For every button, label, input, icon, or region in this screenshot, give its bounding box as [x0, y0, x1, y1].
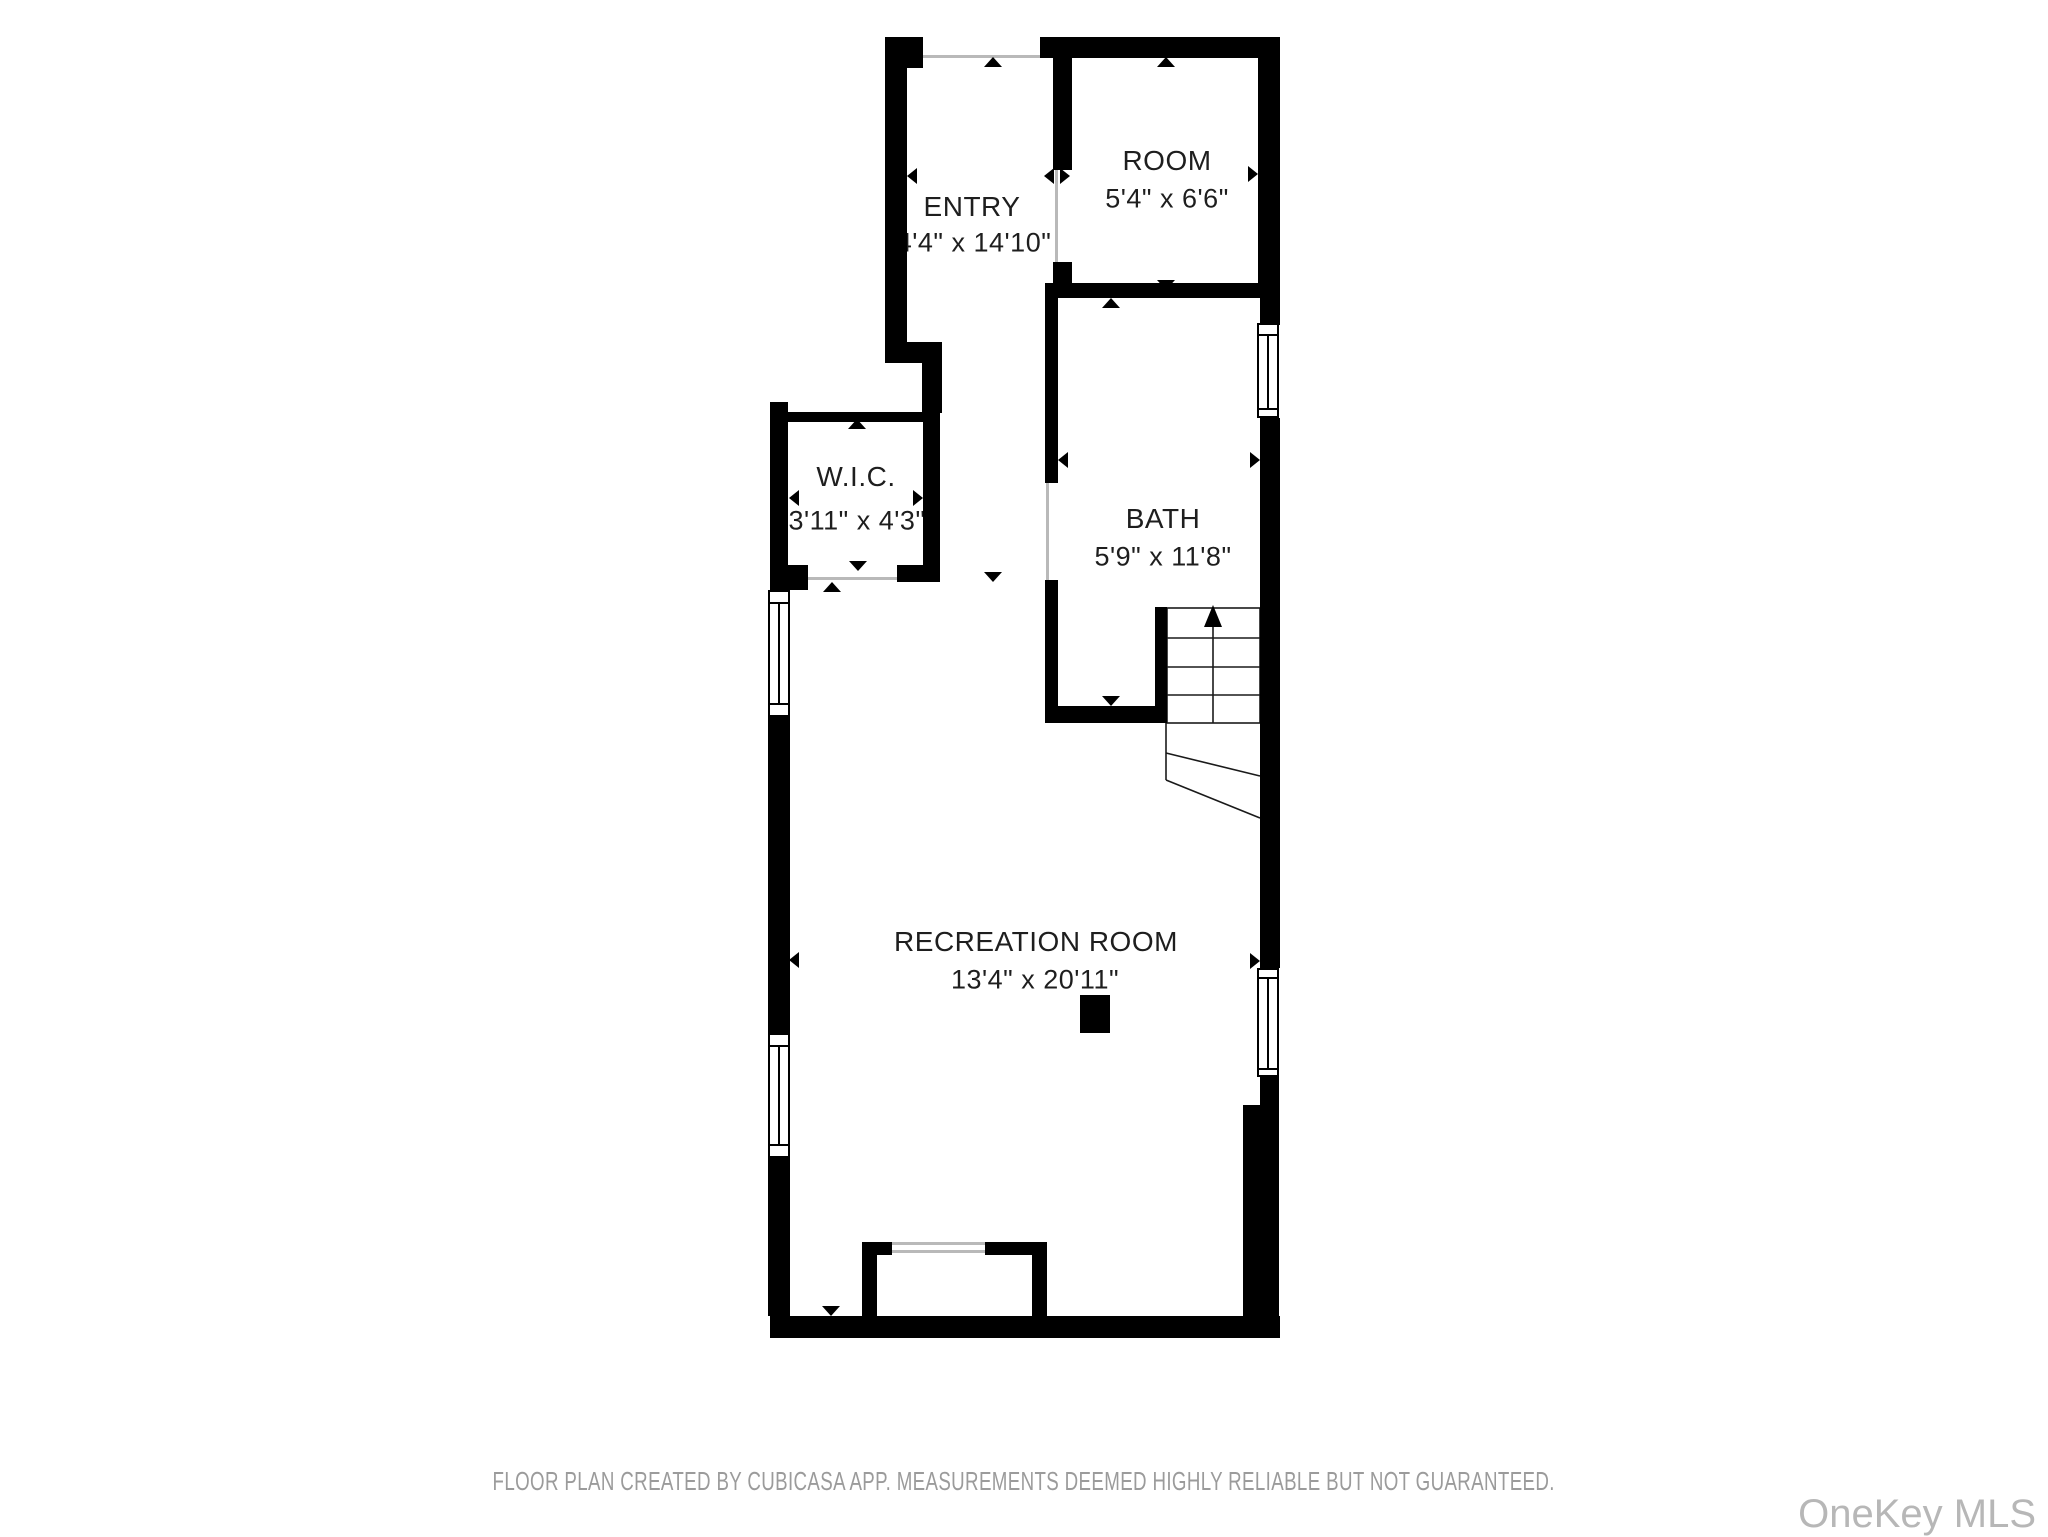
recreation-east-marker-icon [1250, 953, 1260, 969]
room-east-marker-icon [1248, 166, 1258, 182]
wic-label: W.I.C. [816, 461, 895, 493]
entry-dimensions: 4'4" x 14'10" [897, 228, 1052, 259]
window-west-upper [768, 590, 790, 717]
wall-bath-west-upper [1045, 298, 1058, 483]
disclaimer-footer: FLOOR PLAN CREATED BY CUBICASA APP. MEAS… [0, 1466, 2048, 1497]
entry-door-threshold [922, 55, 1040, 58]
recreation-north-marker-icon [823, 582, 841, 592]
floor-plan: ENTRY 4'4" x 14'10" ROOM 5'4" x 6'6" W.I… [0, 0, 2048, 1536]
wall-entry-west [885, 68, 907, 342]
alcove-opening-bottom-line [892, 1250, 985, 1253]
wall-entry-jog-vertical [922, 363, 942, 413]
wall-east-mid [1260, 418, 1280, 968]
entry-room-door-arrow-left-icon [1044, 168, 1054, 184]
wall-alcove-top-left [877, 1242, 892, 1255]
recreation-label: RECREATION ROOM [894, 926, 1178, 958]
entry-west-marker-icon [907, 168, 917, 184]
recreation-west-marker-icon [789, 952, 799, 968]
stair-break-line [1166, 780, 1260, 818]
window-frame-line [1267, 977, 1269, 1070]
wall-wic-bottom-east [897, 565, 940, 582]
wall-wic-west [770, 402, 788, 590]
wall-bath-bottom [1045, 706, 1167, 723]
window-west-lower [768, 1033, 790, 1158]
stair-break-line [1166, 753, 1260, 776]
wall-entry-jog-horizontal [885, 342, 942, 363]
wall-rec-west-lower [768, 1158, 790, 1316]
window-frame-line [778, 602, 780, 705]
room-north-marker-icon [1157, 57, 1175, 67]
wall-stair-west-stub [1155, 607, 1167, 723]
entry-north-marker-icon [984, 57, 1002, 67]
bath-east-marker-icon [1250, 452, 1260, 468]
wic-north-marker-icon [848, 419, 866, 429]
entry-room-door-arrow-right-icon [1060, 168, 1070, 184]
recreation-south-marker-icon [822, 1306, 840, 1316]
room-door-threshold [1055, 170, 1058, 262]
wall-entry-corner-nw [885, 37, 923, 68]
wic-door-threshold [808, 577, 897, 580]
bath-label: BATH [1126, 503, 1201, 535]
bath-dimensions: 5'9" x 11'8" [1094, 542, 1231, 573]
wic-south-marker-icon [849, 561, 867, 571]
room-label: ROOM [1122, 145, 1211, 177]
wall-east-thick-bottom [1243, 1105, 1279, 1338]
wall-bottom [770, 1316, 1280, 1338]
room-south-marker-icon [1157, 280, 1175, 290]
wall-wic-bottom-west [770, 565, 808, 590]
room-dimensions: 5'4" x 6'6" [1105, 184, 1229, 215]
wic-west-marker-icon [789, 490, 799, 506]
alcove-opening-top-line [892, 1242, 985, 1245]
wic-dimensions: 3'11" x 4'3" [788, 506, 925, 537]
window-frame-line [778, 1045, 780, 1146]
entry-south-marker-icon [984, 572, 1002, 582]
wall-bath-west-lower [1045, 580, 1058, 708]
window-rec-east [1257, 968, 1279, 1077]
bath-west-marker-icon [1058, 452, 1068, 468]
wall-room-east [1258, 58, 1280, 298]
bath-south-marker-icon [1102, 696, 1120, 706]
wall-rec-west-mid [768, 717, 790, 1033]
wall-alcove-west [862, 1242, 877, 1316]
wall-bath-east-above-window [1260, 298, 1280, 325]
wall-east-below-window [1260, 1077, 1279, 1105]
entry-label: ENTRY [924, 191, 1021, 223]
wic-east-marker-icon [913, 490, 923, 506]
onekey-mls-watermark: OneKey MLS [1798, 1492, 2036, 1537]
structural-post [1080, 995, 1110, 1033]
wall-entry-room-divider-lower [1053, 262, 1072, 283]
wall-entry-room-divider-upper [1053, 58, 1072, 170]
wall-alcove-east [1032, 1242, 1047, 1316]
bath-north-marker-icon [1102, 298, 1120, 308]
disclaimer-text: FLOOR PLAN CREATED BY CUBICASA APP. MEAS… [493, 1466, 1555, 1497]
window-frame-line [1267, 334, 1269, 410]
recreation-dimensions: 13'4" x 20'11" [951, 965, 1119, 996]
window-bath-east [1257, 323, 1279, 418]
wall-wic-east [923, 412, 940, 582]
bath-door-threshold [1046, 483, 1049, 580]
wall-top-east [1040, 37, 1280, 58]
